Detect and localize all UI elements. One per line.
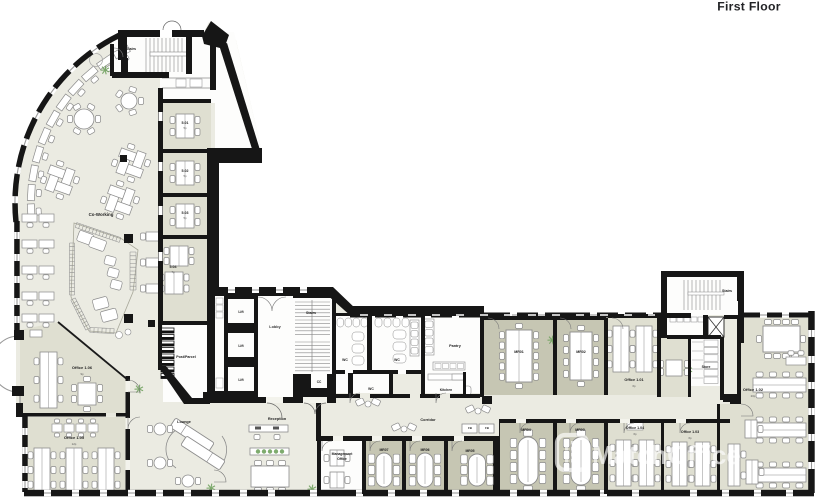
svg-text:MR04: MR04 bbox=[521, 428, 531, 432]
svg-text:20p: 20p bbox=[751, 394, 756, 398]
svg-text:FB: FB bbox=[485, 426, 489, 430]
svg-text:Lobby: Lobby bbox=[269, 325, 281, 329]
svg-text:WC: WC bbox=[342, 358, 348, 362]
svg-text:Management: Management bbox=[332, 452, 354, 456]
svg-text:Lift: Lift bbox=[238, 378, 244, 382]
svg-text:Lift: Lift bbox=[238, 344, 244, 348]
svg-text:6p: 6p bbox=[632, 384, 636, 388]
svg-text:Office 1.06: Office 1.06 bbox=[72, 365, 93, 370]
svg-text:5p: 5p bbox=[183, 126, 187, 130]
svg-text:5.04: 5.04 bbox=[170, 265, 177, 269]
svg-text:Stairs: Stairs bbox=[306, 311, 316, 315]
svg-text:MR01: MR01 bbox=[514, 350, 524, 354]
svg-text:5p: 5p bbox=[183, 216, 187, 220]
svg-text:6p: 6p bbox=[633, 432, 637, 436]
svg-text:Corridor: Corridor bbox=[420, 418, 436, 422]
svg-text:Co-Working: Co-Working bbox=[89, 212, 114, 217]
svg-text:MR05: MR05 bbox=[465, 449, 474, 453]
svg-text:WC: WC bbox=[368, 387, 374, 391]
svg-text:Stairs: Stairs bbox=[722, 289, 732, 293]
svg-text:5p: 5p bbox=[183, 174, 187, 178]
svg-text:First Floor: First Floor bbox=[717, 0, 781, 14]
svg-text:Pantry: Pantry bbox=[449, 344, 462, 348]
svg-text:Lift: Lift bbox=[238, 310, 244, 314]
svg-text:Office 1.03: Office 1.03 bbox=[681, 430, 699, 434]
svg-text:WC: WC bbox=[394, 358, 400, 362]
svg-text:Office 1.02: Office 1.02 bbox=[743, 387, 764, 392]
svg-text:Office 1.01: Office 1.01 bbox=[624, 378, 643, 382]
svg-text:Office: Office bbox=[337, 457, 347, 461]
svg-text:Lounge: Lounge bbox=[177, 420, 191, 424]
svg-text:Stairs: Stairs bbox=[126, 47, 136, 51]
svg-text:Reception: Reception bbox=[268, 417, 287, 421]
svg-text:Office 1.04: Office 1.04 bbox=[626, 426, 644, 430]
svg-text:Office 1.05: Office 1.05 bbox=[64, 435, 85, 440]
svg-text:MR02: MR02 bbox=[576, 350, 586, 354]
svg-text:9p: 9p bbox=[80, 372, 84, 376]
svg-text:5.01: 5.01 bbox=[182, 121, 189, 125]
svg-text:FB: FB bbox=[468, 426, 472, 430]
svg-text:CC: CC bbox=[317, 380, 322, 384]
svg-text:7p: 7p bbox=[171, 270, 175, 274]
svg-text:5.03: 5.03 bbox=[182, 211, 189, 215]
svg-text:MR03: MR03 bbox=[575, 428, 585, 432]
svg-text:12p: 12p bbox=[72, 442, 77, 446]
svg-text:MR07: MR07 bbox=[379, 448, 388, 452]
svg-text:Kitchen: Kitchen bbox=[440, 388, 452, 392]
svg-text:MatchOffice: MatchOffice bbox=[592, 440, 741, 470]
svg-text:Store: Store bbox=[702, 365, 711, 369]
svg-text:MR06: MR06 bbox=[420, 448, 429, 452]
svg-text:5.02: 5.02 bbox=[182, 169, 189, 173]
svg-text:Post/Parcel: Post/Parcel bbox=[176, 355, 196, 359]
